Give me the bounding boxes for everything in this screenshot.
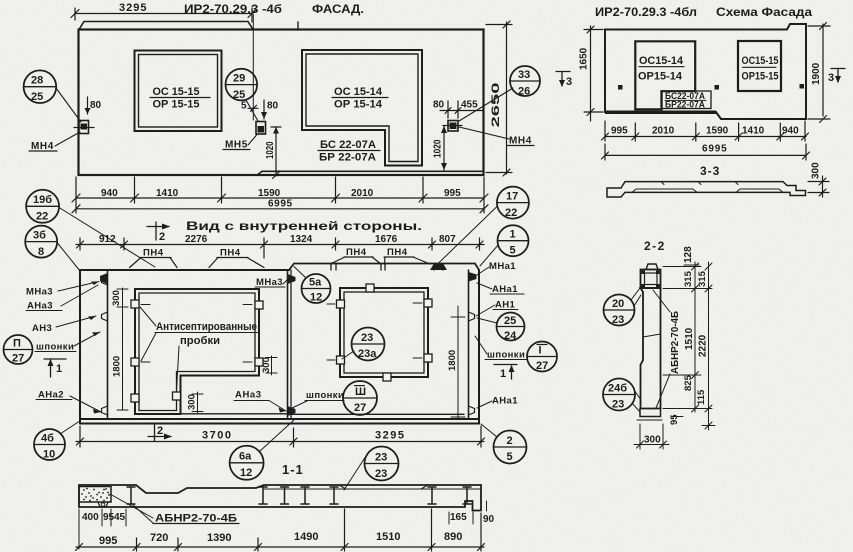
svg-text:995: 995 — [444, 188, 461, 199]
svg-text:4б: 4б — [41, 433, 54, 445]
svg-text:5: 5 — [510, 245, 516, 257]
svg-text:23: 23 — [612, 399, 624, 411]
svg-text:ОС15-14: ОС15-14 — [639, 55, 684, 67]
svg-text:ПН4: ПН4 — [143, 248, 164, 259]
svg-text:890: 890 — [444, 531, 462, 543]
svg-text:2276: 2276 — [185, 234, 208, 245]
svg-text:1410: 1410 — [742, 126, 765, 137]
svg-text:1390: 1390 — [207, 532, 231, 544]
svg-text:1510: 1510 — [684, 327, 695, 350]
svg-text:10: 10 — [43, 449, 55, 461]
svg-text:АНа3: АНа3 — [235, 390, 262, 401]
svg-text:940: 940 — [101, 188, 118, 199]
svg-text:23а: 23а — [358, 348, 377, 360]
svg-text:807: 807 — [439, 234, 456, 245]
svg-text:1020: 1020 — [265, 141, 276, 159]
svg-text:ОР 15-14: ОР 15-14 — [334, 99, 383, 111]
svg-text:315: 315 — [683, 270, 694, 287]
svg-text:1590: 1590 — [258, 188, 281, 199]
svg-text:БР22-07А: БР22-07А — [665, 100, 705, 111]
svg-text:912: 912 — [99, 234, 116, 245]
svg-text:5: 5 — [507, 451, 513, 463]
svg-text:1-1: 1-1 — [282, 462, 304, 477]
svg-text:80: 80 — [433, 100, 445, 111]
svg-text:П: П — [13, 338, 21, 350]
svg-text:3: 3 — [566, 76, 572, 88]
svg-text:3295: 3295 — [375, 430, 405, 442]
svg-text:шпонки: шпонки — [487, 350, 525, 361]
svg-text:24: 24 — [504, 330, 517, 342]
svg-text:315: 315 — [697, 270, 708, 287]
svg-text:115: 115 — [696, 389, 707, 405]
svg-text:3295: 3295 — [119, 2, 147, 14]
svg-text:2010: 2010 — [351, 188, 374, 199]
svg-text:АНа1: АНа1 — [492, 396, 518, 407]
svg-text:АН1: АН1 — [495, 300, 516, 311]
svg-text:300: 300 — [111, 290, 122, 306]
svg-text:25: 25 — [31, 91, 43, 103]
svg-text:ФАСАД.: ФАСАД. — [312, 2, 364, 16]
svg-text:128: 128 — [683, 246, 694, 263]
svg-text:АН3: АН3 — [32, 323, 52, 334]
svg-text:1490: 1490 — [294, 531, 318, 543]
svg-text:ОС 15-15: ОС 15-15 — [153, 86, 200, 98]
svg-text:12: 12 — [310, 292, 322, 304]
svg-text:ОС 15-14: ОС 15-14 — [334, 86, 383, 98]
svg-text:300: 300 — [261, 357, 272, 373]
svg-text:ИР2-70.29.3 -4бл: ИР2-70.29.3 -4бл — [595, 5, 697, 19]
svg-text:МНа1: МНа1 — [489, 261, 516, 272]
svg-text:АНа1: АНа1 — [492, 284, 518, 295]
svg-text:1: 1 — [510, 229, 516, 241]
svg-text:МНа3: МНа3 — [26, 287, 53, 298]
svg-text:26: 26 — [518, 86, 530, 98]
svg-text:455: 455 — [461, 100, 478, 111]
svg-text:23: 23 — [375, 452, 387, 464]
svg-text:шпонки: шпонки — [306, 390, 344, 401]
svg-text:1324: 1324 — [290, 234, 313, 245]
svg-text:33: 33 — [518, 69, 530, 81]
svg-text:МН5: МН5 — [225, 140, 248, 151]
svg-text:28: 28 — [31, 75, 43, 87]
svg-text:3: 3 — [828, 72, 834, 84]
svg-text:720: 720 — [150, 532, 168, 544]
svg-text:БР 22-07А: БР 22-07А — [319, 152, 376, 164]
svg-text:3б: 3б — [33, 230, 46, 242]
svg-text:1676: 1676 — [375, 234, 398, 245]
svg-text:20: 20 — [612, 298, 624, 310]
svg-text:ОР 15-15: ОР 15-15 — [153, 99, 200, 111]
svg-text:6995: 6995 — [702, 144, 727, 155]
svg-text:12: 12 — [240, 467, 252, 479]
svg-text:ОР15-15: ОР15-15 — [742, 71, 779, 83]
svg-text:45: 45 — [114, 512, 126, 523]
svg-text:ПН4: ПН4 — [387, 247, 408, 258]
svg-text:6995: 6995 — [268, 199, 293, 210]
svg-text:2: 2 — [157, 425, 163, 437]
svg-text:24б: 24б — [608, 383, 627, 395]
svg-text:995: 995 — [611, 126, 628, 137]
svg-text:ПН4: ПН4 — [346, 247, 367, 258]
svg-text:пробки: пробки — [180, 335, 220, 347]
svg-text:1590: 1590 — [706, 126, 729, 137]
svg-text:1900: 1900 — [811, 62, 822, 85]
svg-text:19б: 19б — [33, 194, 52, 206]
svg-text:МНа3: МНа3 — [256, 277, 283, 288]
svg-text:29: 29 — [233, 73, 245, 85]
svg-text:АБНР2-70-4Б: АБНР2-70-4Б — [155, 513, 237, 525]
svg-text:995: 995 — [99, 535, 117, 547]
svg-text:300: 300 — [644, 435, 661, 446]
svg-text:2: 2 — [159, 231, 165, 243]
svg-text:22: 22 — [505, 207, 517, 219]
svg-text:17: 17 — [506, 191, 518, 203]
svg-text:Антисептированные: Антисептированные — [156, 321, 257, 333]
svg-text:АНа3: АНа3 — [27, 301, 53, 312]
svg-text:3700: 3700 — [202, 430, 232, 442]
svg-text:80: 80 — [267, 101, 279, 112]
svg-text:300: 300 — [811, 162, 822, 179]
svg-text:АБНР2-70-4Б: АБНР2-70-4Б — [670, 311, 681, 374]
svg-text:8: 8 — [38, 246, 44, 258]
svg-text:300: 300 — [187, 394, 198, 410]
svg-text:ПН4: ПН4 — [220, 248, 241, 259]
svg-text:25: 25 — [233, 89, 245, 101]
svg-text:1410: 1410 — [156, 188, 179, 199]
svg-text:1: 1 — [500, 368, 506, 380]
svg-text:25: 25 — [504, 315, 516, 327]
svg-text:22: 22 — [36, 211, 48, 223]
svg-text:95: 95 — [103, 512, 115, 523]
svg-text:27: 27 — [354, 402, 366, 414]
svg-text:27: 27 — [536, 360, 548, 372]
svg-text:2220: 2220 — [698, 334, 709, 357]
svg-text:шпонки: шпонки — [36, 342, 74, 353]
svg-text:940: 940 — [782, 126, 799, 137]
svg-text:23: 23 — [612, 314, 624, 326]
svg-text:2: 2 — [507, 435, 513, 447]
svg-text:МН4: МН4 — [509, 136, 532, 147]
svg-text:I: I — [539, 345, 542, 357]
svg-text:Схема Фасада: Схема Фасада — [716, 5, 812, 19]
svg-text:3-3: 3-3 — [700, 164, 720, 178]
svg-text:Ш: Ш — [355, 386, 366, 398]
svg-text:27: 27 — [12, 353, 24, 365]
svg-text:АНа2: АНа2 — [38, 390, 64, 401]
svg-text:1020: 1020 — [433, 139, 444, 158]
svg-text:БС 22-07А: БС 22-07А — [320, 139, 376, 151]
svg-text:2650: 2650 — [490, 83, 502, 128]
svg-text:90: 90 — [483, 514, 495, 525]
svg-text:1800: 1800 — [112, 356, 123, 377]
svg-text:ОР15-14: ОР15-14 — [638, 70, 683, 82]
svg-text:95: 95 — [669, 414, 680, 425]
svg-text:6а: 6а — [239, 451, 252, 463]
svg-text:Вид с внутренней стороны.: Вид с внутренней стороны. — [186, 219, 422, 233]
svg-text:825: 825 — [683, 374, 694, 391]
svg-text:2010: 2010 — [652, 126, 675, 137]
svg-text:2-2: 2-2 — [644, 239, 666, 253]
svg-text:23: 23 — [361, 332, 373, 344]
svg-text:23: 23 — [375, 468, 387, 480]
svg-text:1800: 1800 — [447, 350, 458, 371]
svg-text:1510: 1510 — [376, 531, 400, 543]
svg-text:5а: 5а — [309, 277, 322, 289]
svg-text:ОС15-15: ОС15-15 — [742, 55, 779, 67]
svg-text:1650: 1650 — [579, 47, 590, 70]
svg-text:5: 5 — [241, 101, 247, 112]
svg-text:400: 400 — [82, 512, 99, 523]
svg-text:80: 80 — [90, 100, 102, 111]
svg-text:1: 1 — [56, 363, 62, 375]
svg-text:165: 165 — [450, 512, 467, 523]
svg-text:МН4: МН4 — [31, 141, 54, 152]
